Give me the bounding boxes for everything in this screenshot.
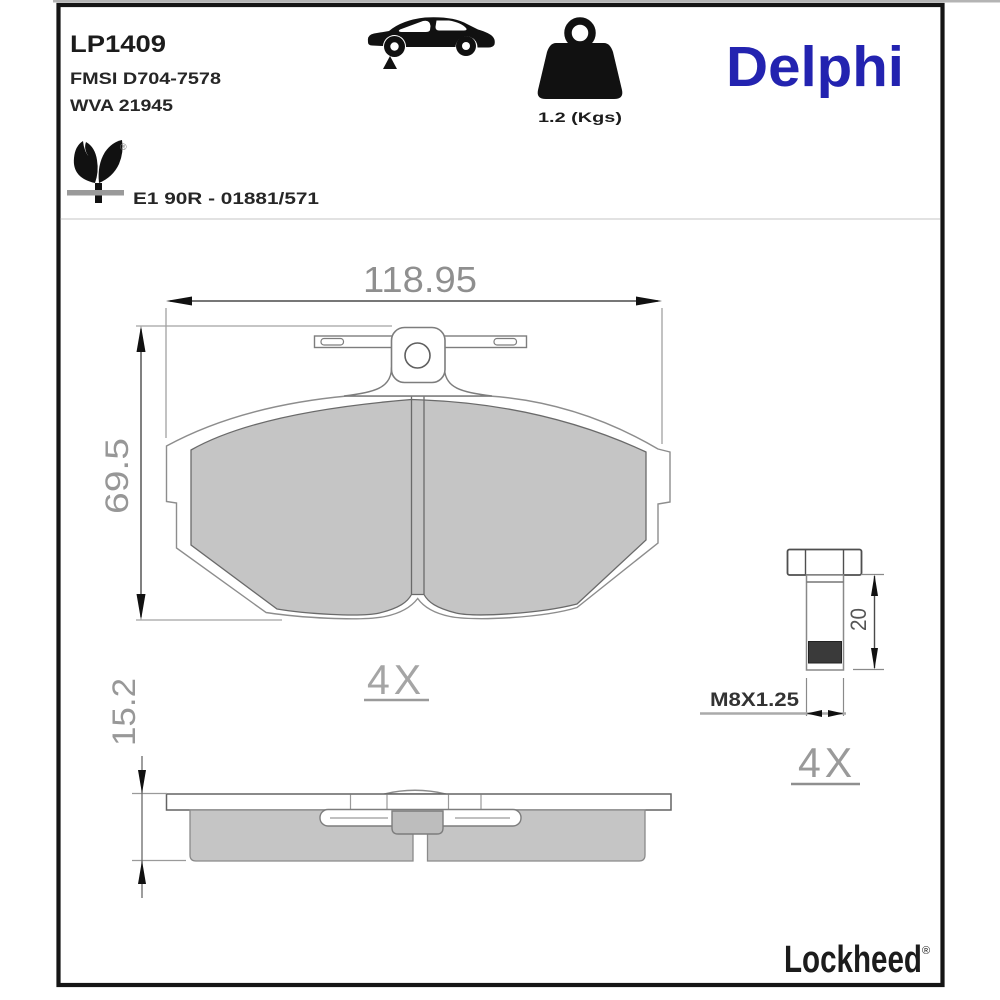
svg-text:M8X1.25: M8X1.25 [710,690,800,711]
svg-text:Delphi: Delphi [726,35,904,99]
svg-text:4X: 4X [798,739,856,786]
svg-text:4X: 4X [367,656,425,703]
svg-text:WVA 21945: WVA 21945 [70,97,173,115]
svg-text:E1 90R - 01881/571: E1 90R - 01881/571 [133,190,319,208]
svg-text:118.95: 118.95 [363,259,477,300]
svg-text:LP1409: LP1409 [70,31,166,58]
svg-text:15.2: 15.2 [106,678,142,746]
svg-text:®: ® [120,142,127,152]
svg-text:20: 20 [846,608,871,631]
svg-text:1.2 (Kgs): 1.2 (Kgs) [538,110,622,125]
svg-text:®: ® [922,945,930,957]
svg-text:FMSI D704-7578: FMSI D704-7578 [70,70,221,88]
svg-text:69.5: 69.5 [99,438,135,514]
svg-text:Lockheed: Lockheed [784,939,922,981]
